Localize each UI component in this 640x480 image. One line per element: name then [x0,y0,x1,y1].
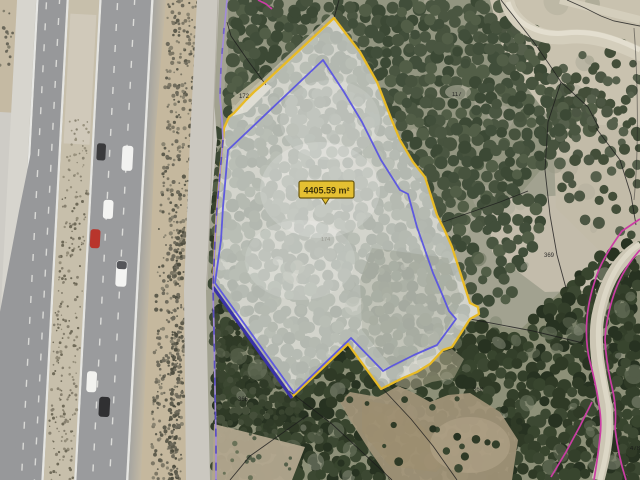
svg-text:368: 368 [473,387,484,393]
svg-text:4405.59 m²: 4405.59 m² [303,186,349,196]
svg-text:478: 478 [630,446,640,452]
svg-text:117: 117 [452,92,462,98]
svg-text:174: 174 [321,237,330,243]
svg-text:172: 172 [239,94,250,100]
svg-text:369: 369 [544,253,555,259]
svg-text:366: 366 [238,397,249,403]
